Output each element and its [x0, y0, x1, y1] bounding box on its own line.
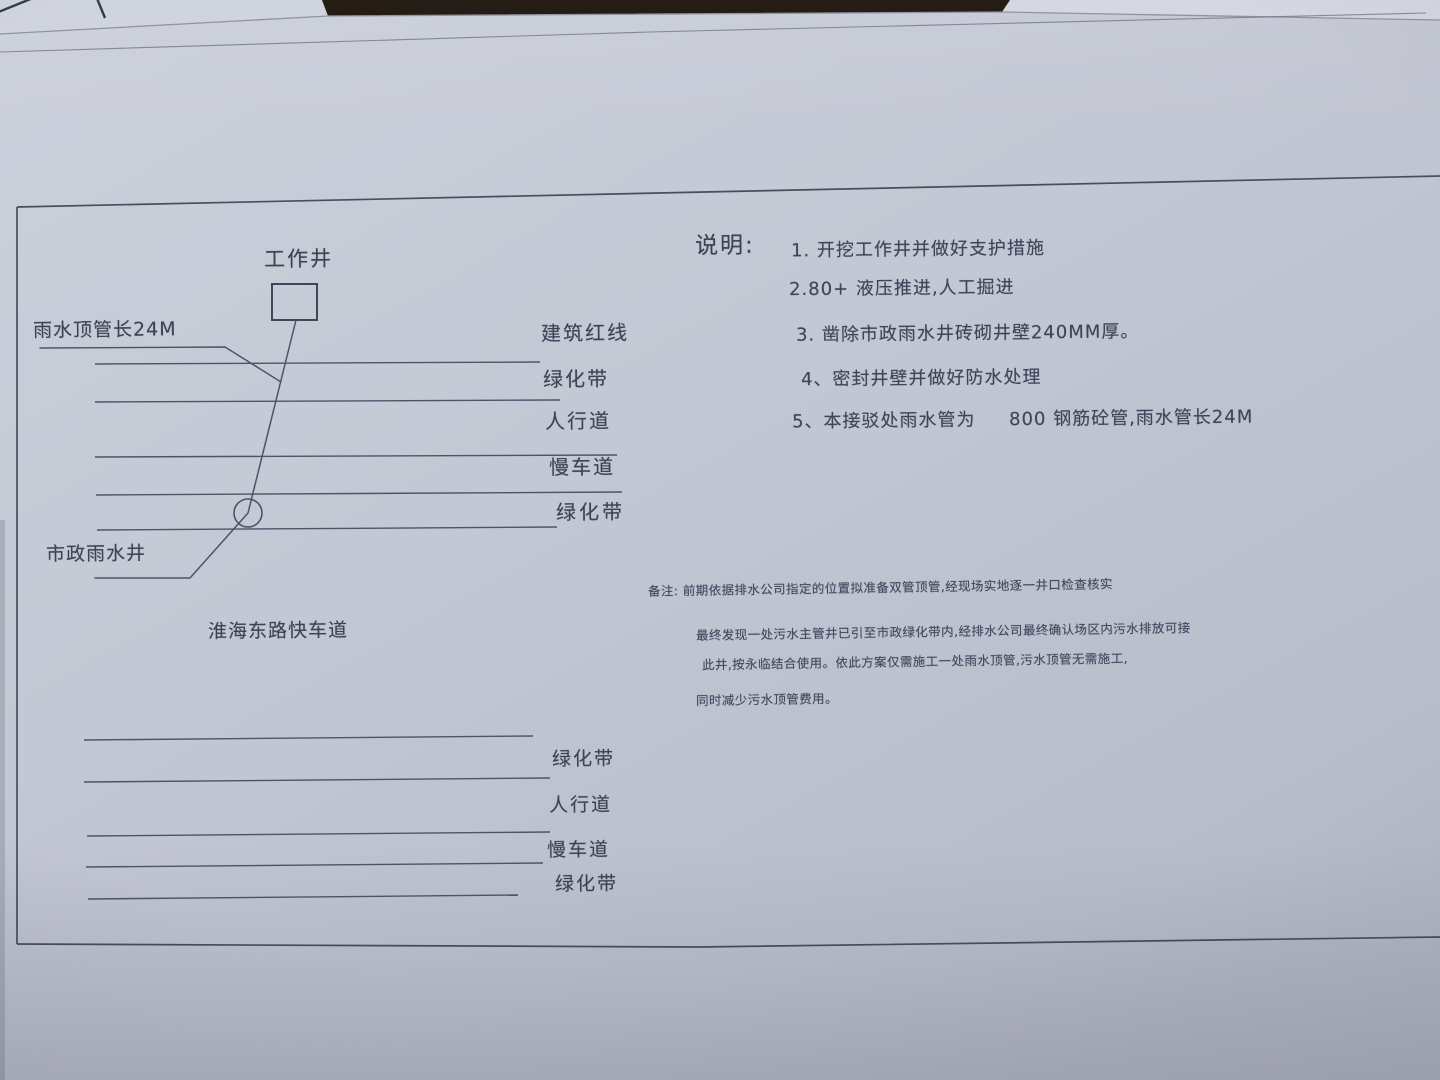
rain-pipe-label: 雨水顶管长24M	[33, 314, 177, 343]
note-item-2: 2.80+ 液压推进,人工掘进	[789, 273, 1015, 301]
municipal-well-label: 市政雨水井	[46, 538, 146, 566]
photo-of-drawing: 工作井 雨水顶管长24M 建筑红线 绿化带 人行道 慢车道 绿化带 市政雨水井 …	[0, 0, 1440, 1080]
upper-zone-label-slow-lane: 慢车道	[549, 451, 615, 481]
road-label: 淮海东路快车道	[208, 615, 348, 643]
upper-zone-label-sidewalk: 人行道	[545, 405, 611, 435]
note-item-3: 3. 凿除市政雨水井砖砌井壁240MM厚。	[796, 317, 1140, 347]
note-item-1: 1. 开挖工作井并做好支护措施	[791, 234, 1045, 263]
upper-zone-label-green-belt-2: 绿化带	[556, 496, 625, 526]
note-item-5: 5、本接驳处雨水管为 800 钢筋砼管,雨水管长24M	[792, 403, 1254, 434]
lower-zone-label-green-belt-1: 绿化带	[552, 744, 615, 772]
note-item-4: 4、密封井壁并做好防水处理	[801, 363, 1042, 392]
work-shaft-label: 工作井	[264, 243, 333, 274]
remark-line-4: 同时减少污水顶管费用。	[696, 688, 838, 709]
paper-left-edge-shadow	[0, 520, 5, 1080]
notes-title: 说明:	[695, 226, 755, 261]
lower-zone-label-sidewalk: 人行道	[549, 790, 612, 818]
paper-sheet	[0, 12, 1440, 1080]
upper-zone-label-building-red-line: 建筑红线	[541, 317, 629, 347]
upper-zone-label-green-belt-1: 绿化带	[543, 363, 609, 393]
lower-zone-label-green-belt-2: 绿化带	[555, 869, 618, 897]
lower-zone-label-slow-lane: 慢车道	[547, 835, 610, 863]
drawing-scene	[0, 0, 1440, 1080]
